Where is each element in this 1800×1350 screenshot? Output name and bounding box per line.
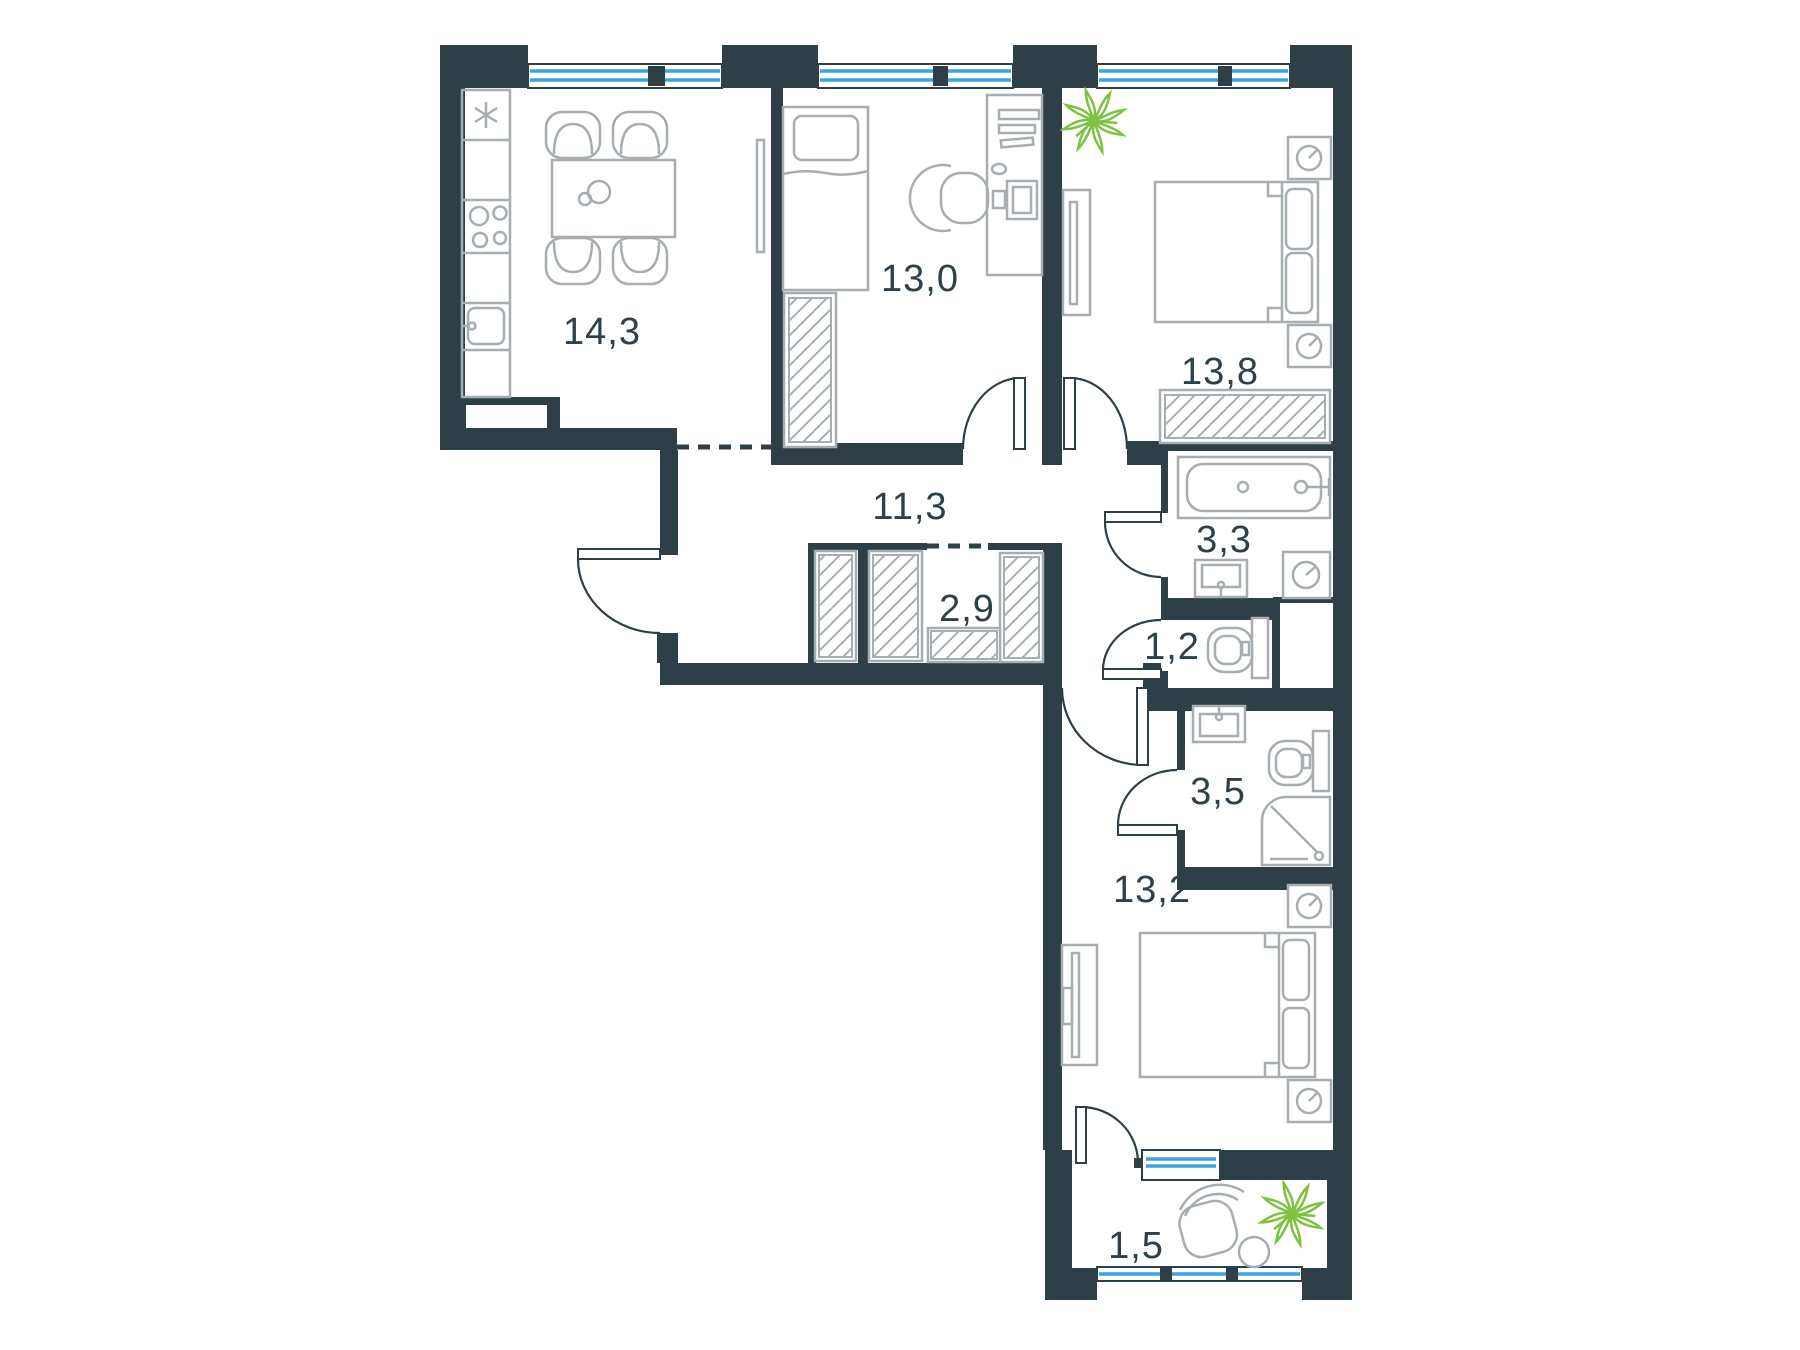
wardrobe-icon	[869, 551, 922, 661]
plant-icon	[1261, 1183, 1322, 1245]
area-label-bedroom-top: 13,0	[881, 258, 959, 300]
office-chair-icon	[910, 165, 988, 231]
double-bed-icon	[1155, 182, 1318, 322]
floor-plan-page: 14,3 13,0 13,8 11,3 2,9 3,3 1,2 3,5 13,2…	[0, 0, 1800, 1350]
window-kitchen	[528, 64, 722, 88]
nightstand-icon	[1288, 137, 1331, 179]
window-balcony-front	[1097, 1267, 1302, 1281]
nightstand-icon	[1288, 885, 1331, 927]
wall-niche	[466, 405, 547, 428]
door-bathroom	[1105, 512, 1161, 577]
room-wardrobe-closet	[815, 551, 1043, 662]
room-wc	[1208, 618, 1268, 678]
dresser-icon	[1063, 190, 1090, 315]
wardrobe-icon	[784, 293, 836, 447]
area-label-hallway: 11,3	[872, 486, 947, 528]
wardrobe-icon	[1160, 390, 1330, 443]
window-bedroom-right	[1097, 64, 1290, 88]
area-label-shower-bathroom: 3,5	[1190, 771, 1246, 813]
door-bedroom-top	[963, 378, 1025, 449]
toilet-icon	[1208, 618, 1268, 678]
sink-icon	[1195, 560, 1247, 597]
double-bed-icon	[1140, 933, 1315, 1077]
mirror-icon	[757, 140, 764, 252]
door-balcony	[1076, 1107, 1138, 1163]
room-bedroom-bottom	[1062, 885, 1331, 1122]
shower-icon	[1262, 797, 1330, 865]
bathtub-icon	[1178, 457, 1330, 518]
door-entrance	[578, 549, 660, 633]
area-label-bathroom: 3,3	[1196, 519, 1252, 561]
room-balcony	[1175, 1183, 1322, 1267]
area-labels: 14,3 13,0 13,8 11,3 2,9 3,3 1,2 3,5 13,2…	[563, 258, 1259, 1267]
door-bedroom-bottom	[1062, 688, 1148, 765]
plant-icon	[1063, 90, 1124, 152]
window-bedroom-top	[818, 64, 1013, 88]
shelf-icon	[928, 628, 1000, 662]
area-label-kitchen-living: 14,3	[563, 311, 641, 353]
door-shower-bathroom	[1118, 770, 1177, 835]
area-label-wc: 1,2	[1144, 626, 1200, 668]
desk-icon	[987, 95, 1042, 275]
area-label-bedroom-bottom: 13,2	[1113, 869, 1191, 911]
stove-icon	[470, 207, 507, 248]
nightstand-icon	[1288, 325, 1331, 367]
area-label-balcony: 1,5	[1108, 1225, 1164, 1267]
floor-plan: 14,3 13,0 13,8 11,3 2,9 3,3 1,2 3,5 13,2…	[0, 0, 1800, 1350]
sink-icon	[462, 308, 504, 344]
single-bed-icon	[783, 107, 868, 290]
nightstand-icon	[1288, 1080, 1331, 1122]
wardrobe-icon	[815, 551, 856, 661]
fridge-icon	[475, 102, 497, 128]
wardrobe-icon	[1000, 553, 1043, 662]
balcony-chair-icon	[1175, 1185, 1244, 1261]
washing-machine-icon	[1283, 552, 1330, 598]
door-bedroom-right	[1064, 378, 1127, 449]
side-table-icon	[1239, 1237, 1269, 1267]
sink-icon	[1193, 706, 1245, 742]
dining-table-icon	[552, 160, 675, 237]
tv-console-icon	[1062, 945, 1097, 1065]
area-label-closet: 2,9	[939, 588, 995, 630]
toilet-icon	[1269, 731, 1329, 791]
window-balcony-door-side	[1142, 1150, 1220, 1180]
area-label-bedroom-right: 13,8	[1181, 351, 1259, 393]
